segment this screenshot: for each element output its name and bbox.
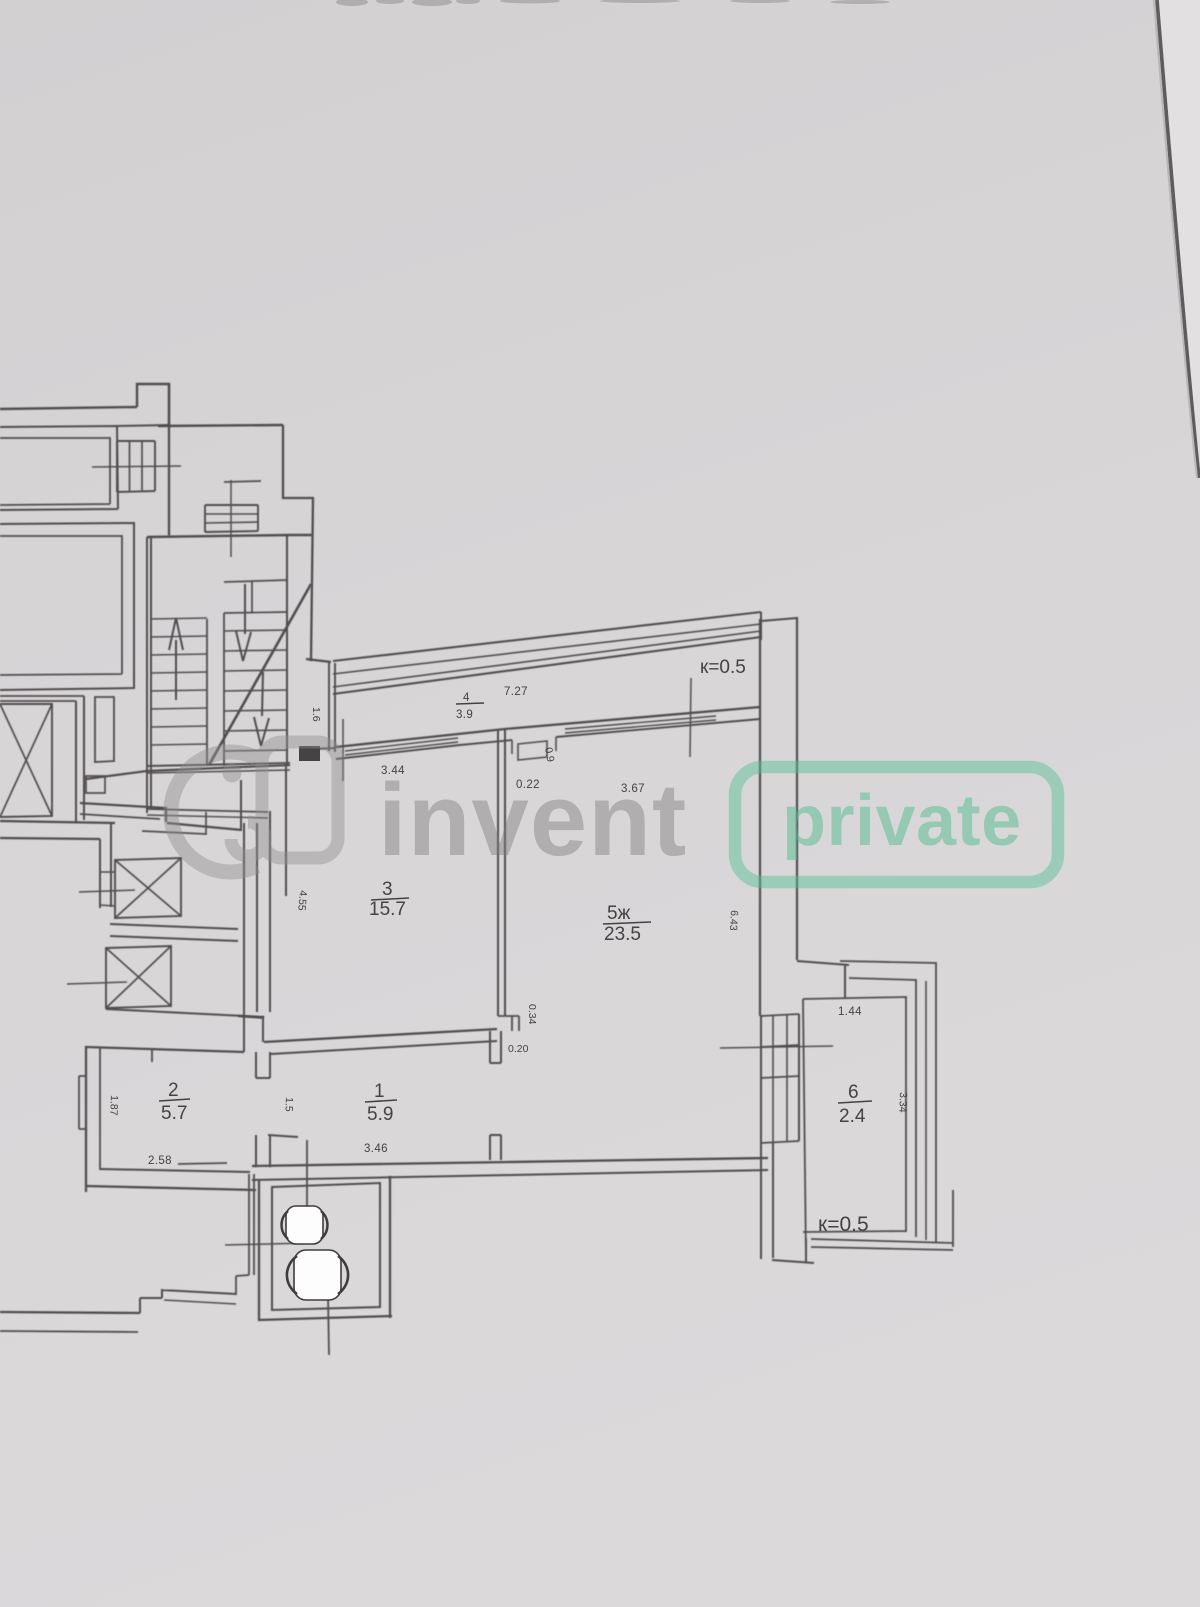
svg-text:3.9: 3.9 <box>456 709 473 721</box>
svg-text:5.9: 5.9 <box>367 1104 393 1125</box>
svg-text:1.5: 1.5 <box>282 1097 295 1112</box>
svg-text:2.58: 2.58 <box>148 1155 172 1167</box>
svg-text:5ж: 5ж <box>607 903 631 924</box>
svg-text:0.34: 0.34 <box>526 1004 538 1025</box>
svg-text:6.43: 6.43 <box>727 910 740 931</box>
svg-text:0.20: 0.20 <box>508 1043 529 1055</box>
svg-text:23.5: 23.5 <box>604 924 641 945</box>
svg-text:1.44: 1.44 <box>838 1006 862 1018</box>
svg-text:1.87: 1.87 <box>107 1095 120 1116</box>
svg-text:к=0.5: к=0.5 <box>700 657 746 678</box>
svg-text:2: 2 <box>168 1080 179 1101</box>
svg-text:0.9: 0.9 <box>542 746 556 763</box>
svg-text:3.34: 3.34 <box>896 1092 909 1113</box>
svg-text:invent: invent <box>378 762 687 877</box>
svg-text:1: 1 <box>374 1081 385 1102</box>
svg-text:private: private <box>782 781 1022 861</box>
svg-text:2.4: 2.4 <box>839 1106 866 1127</box>
svg-text:6: 6 <box>848 1082 859 1103</box>
svg-text:4.55: 4.55 <box>295 890 309 912</box>
svg-text:3: 3 <box>382 879 393 900</box>
svg-text:15.7: 15.7 <box>369 899 406 920</box>
svg-text:7.27: 7.27 <box>504 686 528 698</box>
svg-text:1.6: 1.6 <box>310 707 322 722</box>
svg-text:5.7: 5.7 <box>161 1103 187 1124</box>
svg-text:3.46: 3.46 <box>364 1143 388 1155</box>
svg-text:к=0.5: к=0.5 <box>818 1213 869 1236</box>
svg-text:4: 4 <box>463 692 470 704</box>
